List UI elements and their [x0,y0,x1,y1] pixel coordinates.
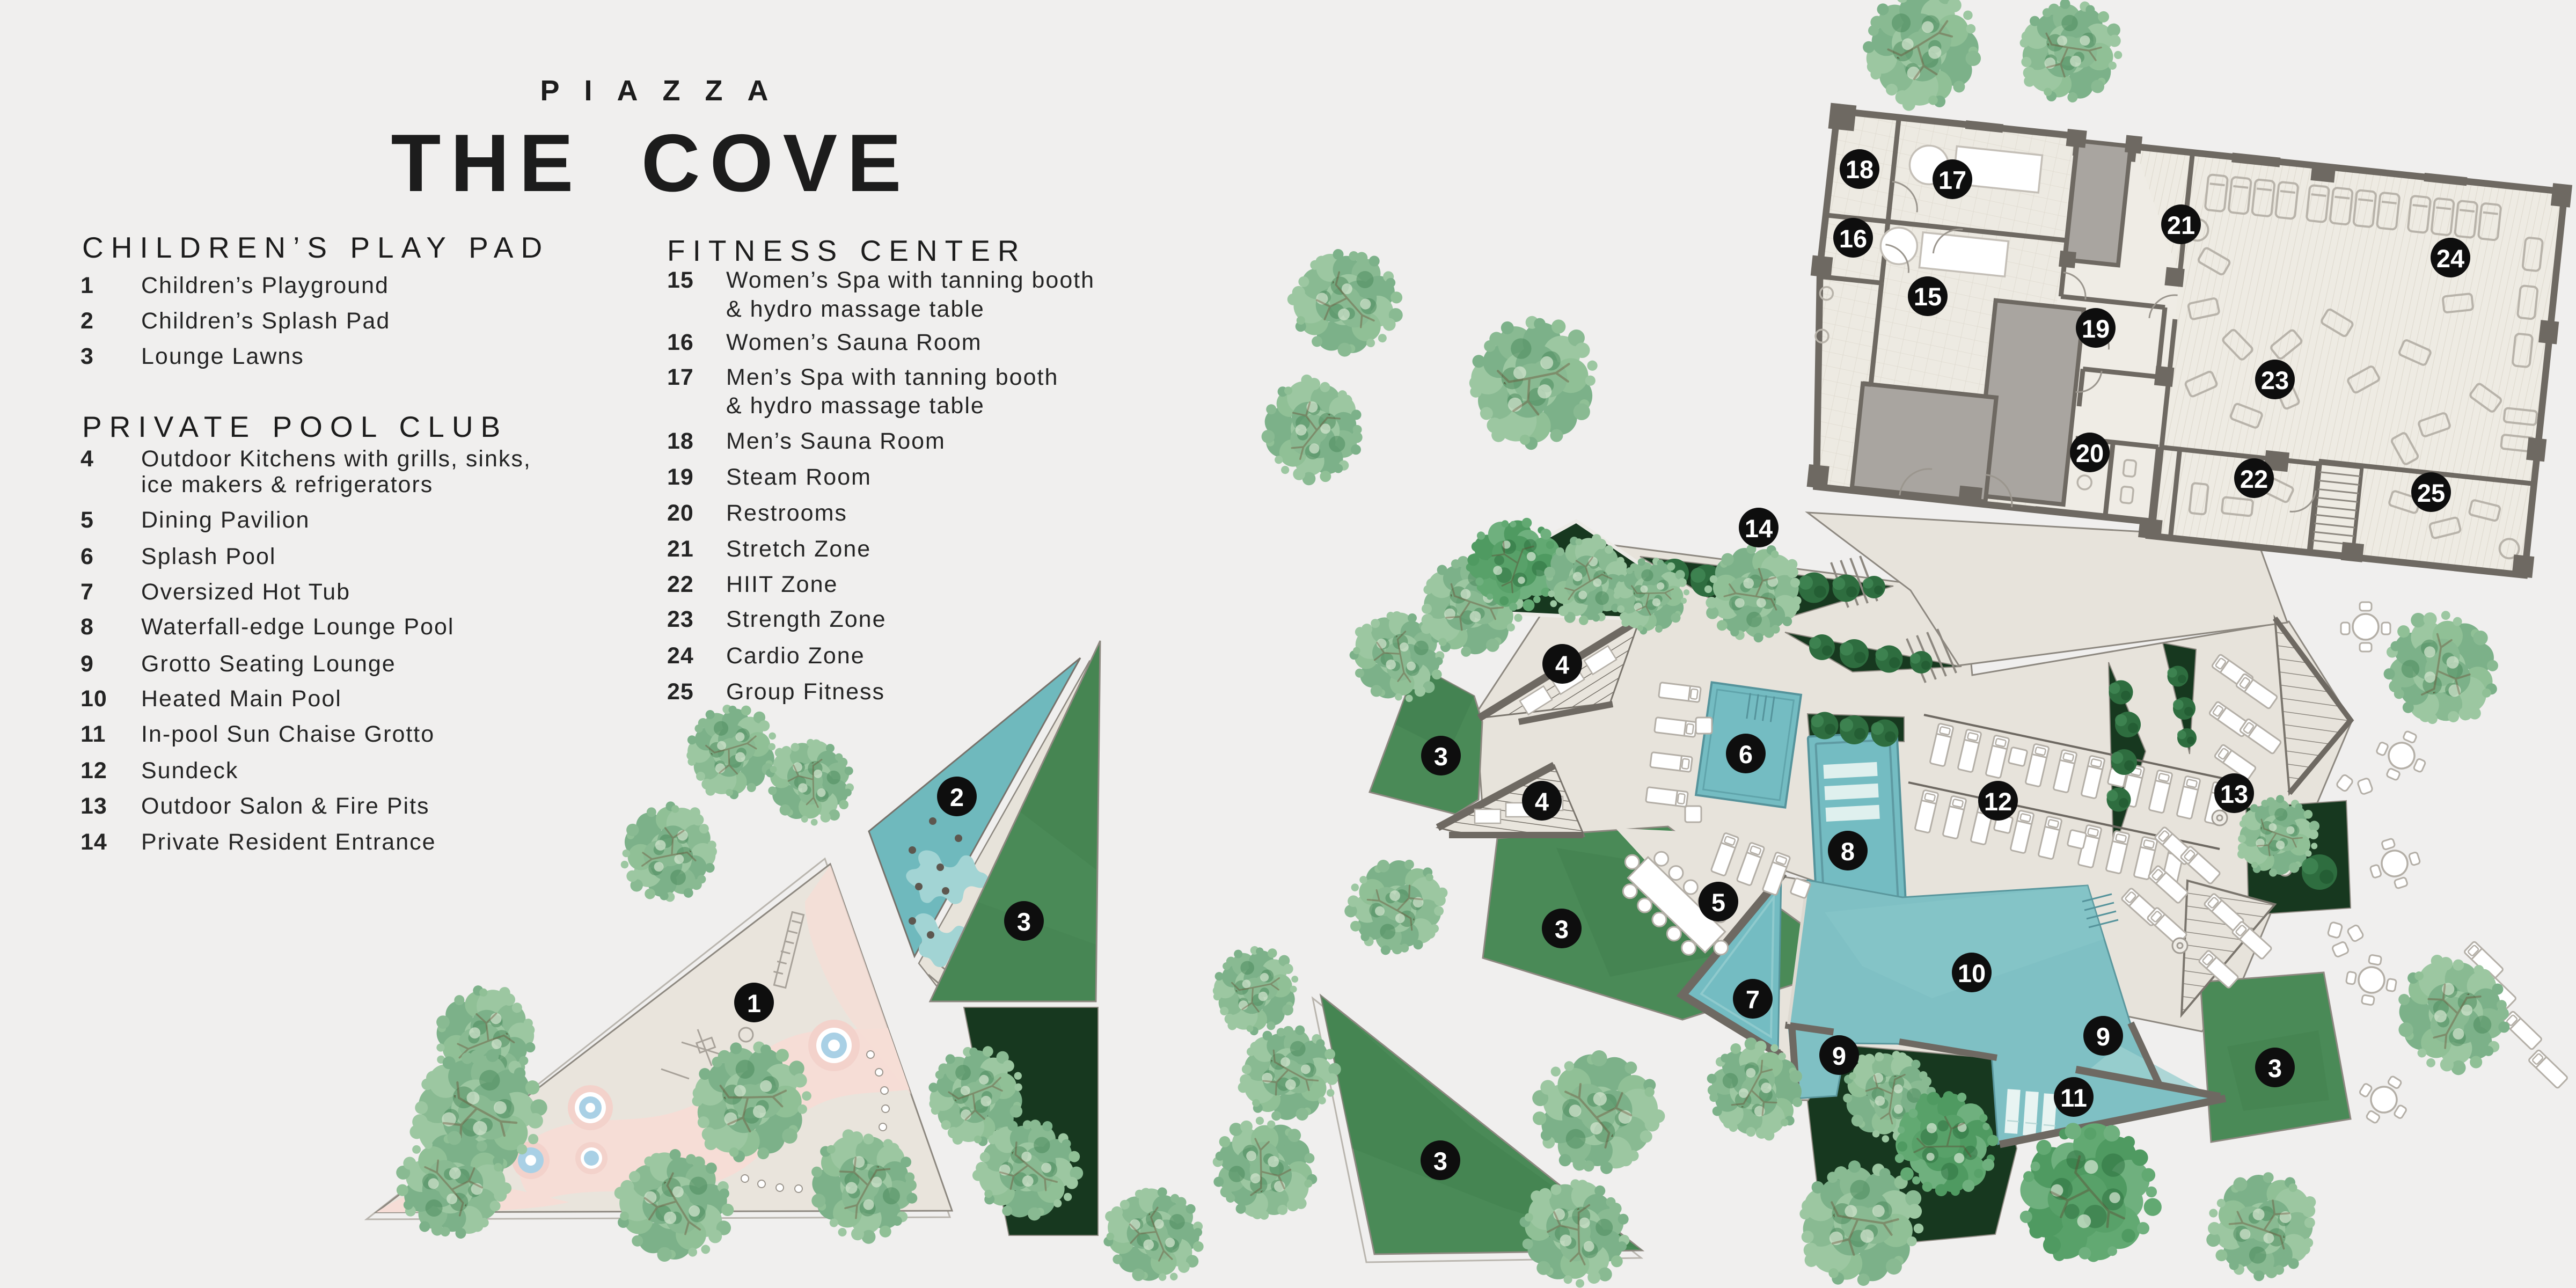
svg-text:4: 4 [80,446,94,472]
svg-text:Men’s Spa with tanning booth: Men’s Spa with tanning booth [726,364,1058,390]
svg-text:Lounge Lawns: Lounge Lawns [141,343,304,369]
svg-text:11: 11 [80,721,106,747]
svg-text:Men’s Sauna Room: Men’s Sauna Room [726,428,946,454]
svg-text:4: 4 [1555,650,1569,679]
svg-text:21: 21 [2167,211,2195,239]
svg-text:HIIT Zone: HIIT Zone [726,572,838,597]
svg-text:6: 6 [80,544,94,569]
svg-text:11: 11 [2060,1084,2087,1112]
svg-text:Children’s Playground: Children’s Playground [141,273,389,298]
svg-text:14: 14 [1745,514,1773,543]
svg-text:19: 19 [2082,314,2110,343]
svg-text:2: 2 [950,783,964,811]
svg-text:14: 14 [80,829,107,855]
svg-text:& hydro massage table: & hydro massage table [726,393,985,419]
svg-text:3: 3 [1017,908,1031,936]
svg-text:21: 21 [667,536,694,562]
svg-text:5: 5 [80,507,94,533]
svg-text:15: 15 [1914,282,1942,311]
svg-text:Restrooms: Restrooms [726,500,847,526]
svg-text:3: 3 [2268,1054,2282,1082]
svg-text:24: 24 [2436,244,2464,273]
svg-text:13: 13 [2220,780,2248,808]
svg-text:Sundeck: Sundeck [141,758,238,784]
svg-text:23: 23 [667,606,694,632]
svg-text:10: 10 [1958,959,1986,987]
svg-text:19: 19 [667,464,694,490]
svg-text:17: 17 [667,364,694,390]
svg-text:In-pool Sun Chaise Grotto: In-pool Sun Chaise Grotto [141,721,435,747]
svg-text:23: 23 [2261,366,2289,394]
svg-text:10: 10 [80,686,107,712]
svg-text:3: 3 [1555,915,1569,943]
svg-text:Women’s Spa with tanning booth: Women’s Spa with tanning booth [726,267,1095,293]
svg-text:24: 24 [667,643,694,669]
svg-text:16: 16 [1839,224,1867,253]
svg-text:16: 16 [667,330,694,355]
svg-text:4: 4 [1535,787,1549,816]
svg-text:PIAZZA: PIAZZA [540,75,793,107]
svg-text:Private Resident Entrance: Private Resident Entrance [141,829,436,855]
svg-text:5: 5 [1711,888,1725,917]
svg-text:Cardio Zone: Cardio Zone [726,643,865,669]
svg-text:& hydro massage table: & hydro massage table [726,296,985,322]
svg-text:FITNESS CENTER: FITNESS CENTER [667,234,1027,267]
svg-text:1: 1 [80,273,94,298]
svg-text:THE COVE: THE COVE [391,118,911,209]
svg-text:Outdoor Kitchens with grills,: Outdoor Kitchens with grills, sinks, [141,446,531,472]
svg-text:3: 3 [1434,742,1448,771]
svg-text:8: 8 [1841,837,1855,866]
svg-text:20: 20 [667,500,694,526]
svg-text:Dining Pavilion: Dining Pavilion [141,507,310,533]
svg-text:12: 12 [1984,787,2012,816]
svg-text:22: 22 [2240,465,2268,493]
svg-text:25: 25 [2417,479,2445,507]
svg-text:Oversized Hot Tub: Oversized Hot Tub [141,579,350,605]
svg-text:20: 20 [2076,439,2104,467]
svg-text:7: 7 [1746,985,1760,1014]
svg-text:13: 13 [80,793,107,819]
svg-text:7: 7 [80,579,94,605]
svg-text:15: 15 [667,267,694,293]
svg-text:6: 6 [1739,740,1753,769]
svg-text:9: 9 [80,651,94,677]
svg-text:22: 22 [667,572,694,597]
svg-text:CHILDREN’S PLAY PAD: CHILDREN’S PLAY PAD [82,231,550,264]
svg-text:3: 3 [1433,1147,1447,1175]
svg-text:18: 18 [667,428,694,454]
svg-text:Splash Pool: Splash Pool [141,544,276,569]
svg-text:25: 25 [667,679,694,705]
svg-text:Waterfall-edge Lounge Pool: Waterfall-edge Lounge Pool [141,614,454,640]
svg-text:Children’s Splash Pad: Children’s Splash Pad [141,308,390,334]
svg-text:PRIVATE POOL CLUB: PRIVATE POOL CLUB [82,410,508,443]
svg-text:Heated Main Pool: Heated Main Pool [141,686,342,712]
svg-text:Outdoor Salon & Fire Pits: Outdoor Salon & Fire Pits [141,793,430,819]
svg-text:12: 12 [80,758,107,784]
svg-text:17: 17 [1938,166,1966,194]
svg-text:9: 9 [2096,1022,2110,1051]
svg-text:Grotto Seating Lounge: Grotto Seating Lounge [141,651,396,677]
svg-text:18: 18 [1846,155,1874,184]
svg-text:ice makers & refrigerators: ice makers & refrigerators [141,472,433,497]
svg-text:Strength Zone: Strength Zone [726,606,887,632]
svg-text:Steam Room: Steam Room [726,464,872,490]
svg-text:Women’s Sauna Room: Women’s Sauna Room [726,330,982,355]
svg-text:9: 9 [1832,1042,1846,1070]
svg-text:Stretch Zone: Stretch Zone [726,536,871,562]
svg-text:8: 8 [80,614,94,640]
svg-text:3: 3 [80,343,94,369]
svg-text:1: 1 [747,989,761,1018]
svg-text:2: 2 [80,308,94,334]
svg-text:Group Fitness: Group Fitness [726,679,885,705]
